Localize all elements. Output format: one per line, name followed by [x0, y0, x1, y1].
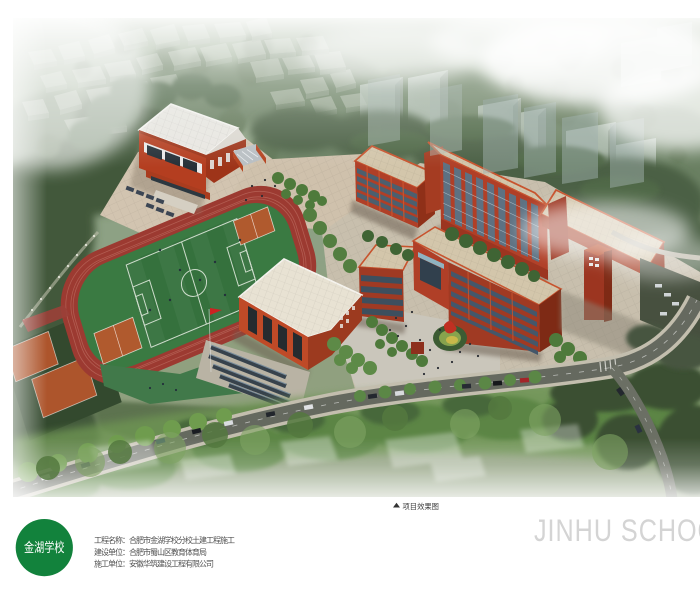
svg-text:建设单位：合肥市蜀山区教育体育局: 建设单位：合肥市蜀山区教育体育局 [94, 547, 207, 557]
svg-text:工程名称：合肥市金湖学校分校土建工程施工: 工程名称：合肥市金湖学校分校土建工程施工 [94, 535, 235, 545]
svg-text:JINHU SCHOOL: JINHU SCHOOL [534, 513, 700, 548]
svg-text:项目效果图: 项目效果图 [403, 502, 439, 511]
svg-text:施工单位：安徽华筑建设工程有限公司: 施工单位：安徽华筑建设工程有限公司 [94, 559, 214, 569]
svg-text:金湖学校: 金湖学校 [24, 540, 65, 556]
